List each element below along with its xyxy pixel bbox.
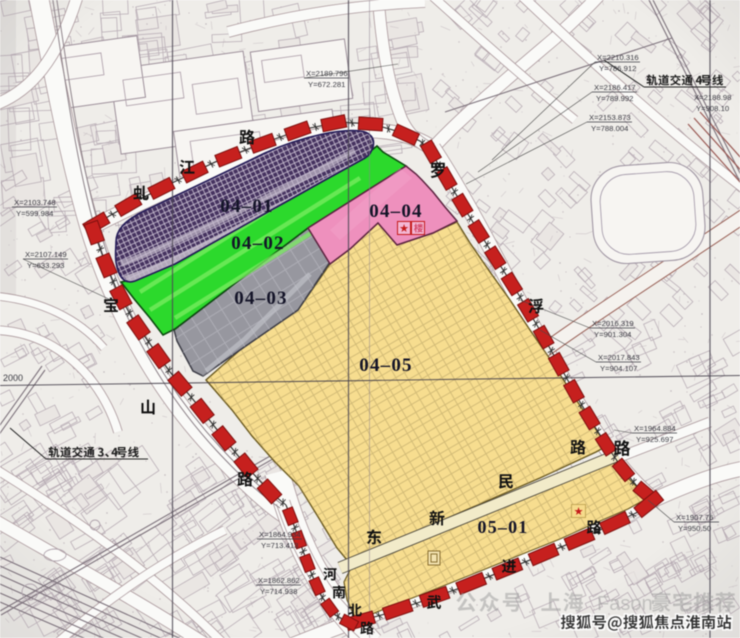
svg-text:Fason: Fason (597, 593, 653, 615)
svg-text:Y=672.281: Y=672.281 (308, 80, 345, 89)
svg-text:X=1907.76: X=1907.76 (676, 513, 713, 522)
svg-text:★: ★ (574, 506, 584, 518)
svg-text:04–04: 04–04 (369, 201, 423, 222)
svg-text:Y=599.984: Y=599.984 (16, 209, 54, 218)
svg-text:X=2186.417: X=2186.417 (594, 83, 636, 92)
svg-text:Y=950.50: Y=950.50 (678, 524, 711, 533)
svg-text:Y=786.912: Y=786.912 (599, 64, 636, 73)
svg-text:04–05: 04–05 (359, 355, 413, 376)
svg-text:Y=713.413: Y=713.413 (261, 541, 298, 550)
svg-text:Y=633.293: Y=633.293 (27, 261, 64, 270)
svg-text:X=1864.934: X=1864.934 (259, 530, 301, 539)
svg-text:Y=714.938: Y=714.938 (260, 587, 297, 596)
svg-text:Y=788.004: Y=788.004 (591, 124, 629, 133)
svg-text:Y=908.10: Y=908.10 (696, 104, 729, 113)
svg-text:X=2188.98: X=2188.98 (694, 93, 731, 102)
svg-text:04–01: 04–01 (220, 196, 274, 217)
svg-text:X=1964.884: X=1964.884 (634, 424, 676, 433)
svg-text:X=2016.319: X=2016.319 (592, 319, 634, 328)
svg-text:Y=789.992: Y=789.992 (596, 94, 633, 103)
svg-text:Y=904.107: Y=904.107 (600, 364, 637, 373)
svg-text:Y=901.304: Y=901.304 (594, 330, 632, 339)
svg-text:X=2107.149: X=2107.149 (25, 250, 67, 259)
svg-text:04–02: 04–02 (231, 233, 285, 254)
svg-text:X=1862.862: X=1862.862 (258, 576, 300, 585)
svg-text:★: ★ (399, 223, 409, 235)
svg-text:05–01: 05–01 (478, 517, 529, 537)
svg-text:X=2153.873: X=2153.873 (589, 113, 631, 122)
svg-text:X=2017.843: X=2017.843 (598, 353, 640, 362)
svg-text:X=2210.316: X=2210.316 (597, 53, 639, 62)
svg-text:Y=925.697: Y=925.697 (636, 435, 673, 444)
svg-text:2000: 2000 (3, 373, 23, 383)
svg-text:04–03: 04–03 (234, 288, 288, 309)
svg-text:X=2103.748: X=2103.748 (14, 198, 56, 207)
